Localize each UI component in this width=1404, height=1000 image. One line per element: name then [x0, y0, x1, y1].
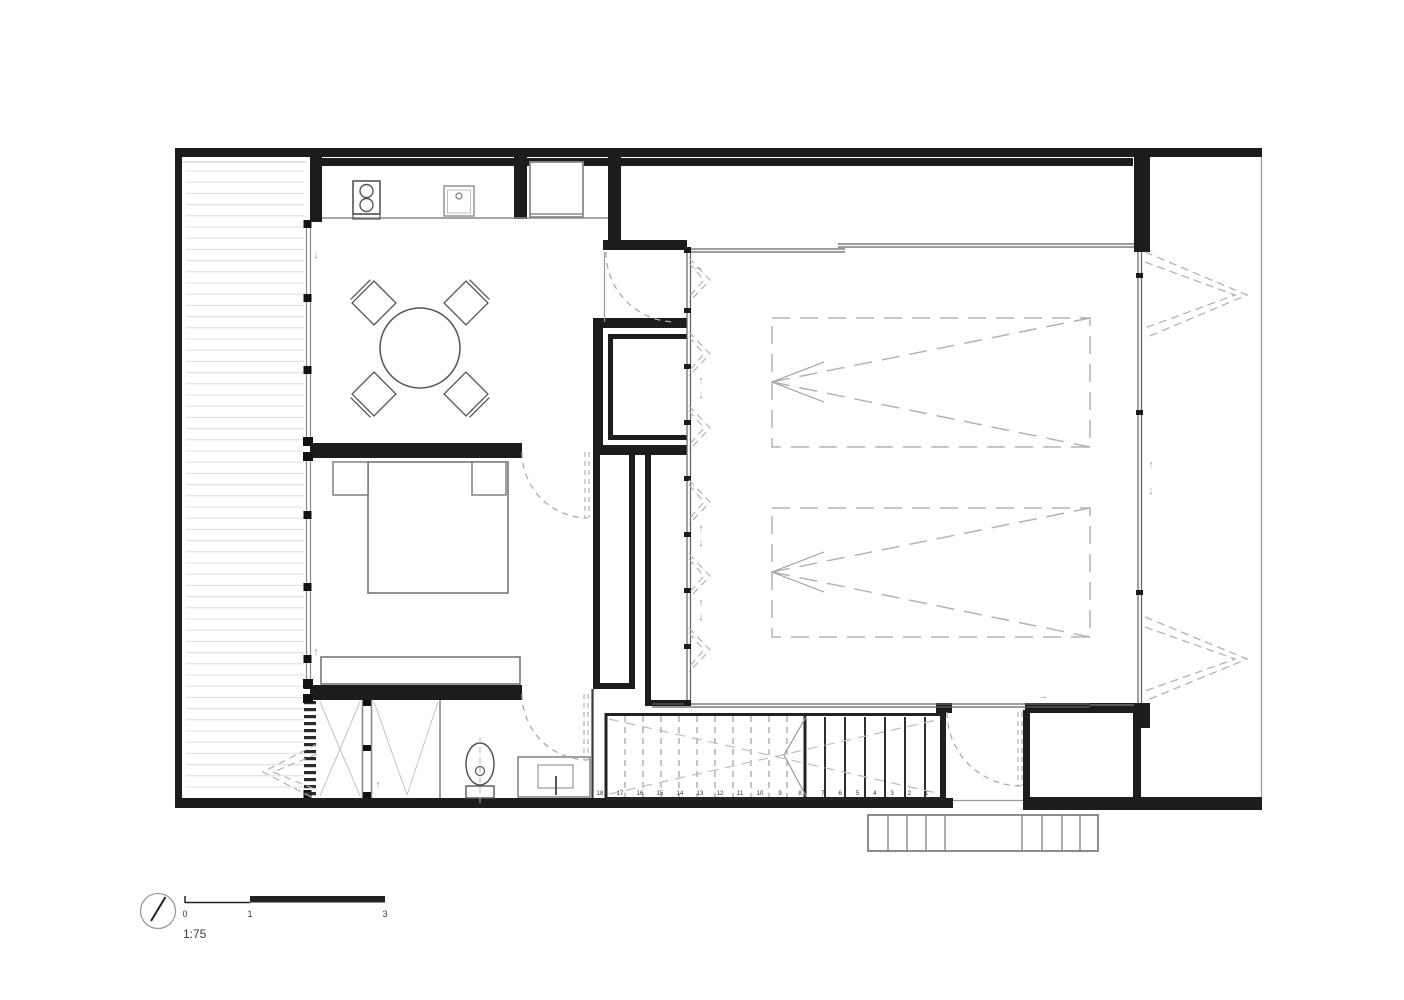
folding-door-chevron — [689, 337, 704, 371]
void-outline — [772, 508, 1090, 637]
void-diagonal — [772, 508, 1090, 572]
stair-tread-number: 16 — [637, 791, 644, 797]
nightstand — [472, 462, 506, 495]
dining-chair-icon — [444, 279, 490, 325]
wall-segment — [629, 455, 635, 683]
chair-seat — [352, 372, 396, 416]
glazing-tick — [1136, 273, 1143, 278]
dining-chair-icon — [350, 372, 396, 418]
void-apex-chevron — [772, 362, 824, 402]
folding-door-chevron — [689, 480, 710, 524]
louver-bar — [304, 778, 316, 781]
stair-tread-number: 5 — [856, 791, 860, 797]
glazing-tick — [684, 532, 691, 537]
north-arrow-icon — [141, 894, 176, 929]
stair-tread-number: 11 — [737, 791, 744, 797]
arrow-down-icon: ↓ — [1148, 485, 1154, 497]
stair-tread-number: 17 — [617, 791, 624, 797]
dining-area — [350, 279, 491, 419]
folding-door-chevron — [689, 554, 710, 598]
wall-segment — [514, 157, 527, 219]
wall-segment — [603, 240, 687, 250]
folding-door-chevron — [689, 559, 704, 593]
wall-segment — [608, 334, 613, 440]
round-dining-table-icon — [380, 308, 460, 388]
arrow-down-icon: ↓ — [698, 537, 704, 549]
arrow-up-icon: ↑ — [1148, 459, 1154, 471]
wall-segment — [608, 334, 687, 339]
glazing-tick — [1136, 590, 1143, 595]
arrow-up-icon: ↑ — [698, 523, 704, 535]
arrow-down-icon: ↓ — [313, 249, 319, 261]
arrow-up-icon: ↑ — [698, 597, 704, 609]
folding-door-chevron — [689, 485, 704, 519]
stair-tread-number: 2 — [908, 791, 912, 797]
exterior-steps-outline — [868, 815, 1098, 851]
folding-door-chevron — [689, 411, 704, 445]
arrow-down-icon: ↓ — [698, 611, 704, 623]
dresser — [321, 657, 520, 684]
sliding-glazing — [652, 244, 1143, 707]
stair-mid-wall — [804, 715, 807, 798]
void-diagonal — [772, 382, 1090, 447]
scale-tick-label: 3 — [382, 909, 387, 919]
dining-chair-icon — [350, 279, 396, 325]
louver-bar — [304, 715, 316, 718]
wall-segment — [593, 318, 687, 328]
wall-end-block — [303, 437, 313, 446]
glazing-tick — [1136, 410, 1143, 415]
stair-tread-number: 18 — [597, 791, 604, 797]
stair-tread-number: 10 — [757, 791, 764, 797]
louver-bar — [304, 722, 316, 725]
louver-bar — [304, 736, 316, 739]
wall-segment — [1134, 148, 1150, 252]
void-apex-chevron — [772, 552, 824, 592]
folding-door-chevron — [1145, 252, 1247, 338]
stair-tread-number: 6 — [839, 791, 843, 797]
stair-tread-number: 3 — [890, 791, 894, 797]
glazing-tick — [684, 588, 691, 593]
scale-bar: 013 — [182, 896, 387, 919]
door-swing-arc — [522, 694, 588, 760]
slider-roller — [304, 655, 312, 663]
void-diagonal — [772, 572, 1090, 637]
wall-end-block — [303, 679, 313, 688]
folding-door-chevron — [689, 628, 710, 672]
dining-chair-icon — [444, 372, 490, 418]
wall-segment — [1023, 710, 1030, 798]
kitchen — [322, 162, 608, 219]
arrow-up-icon: ↑ — [698, 375, 704, 387]
slider-roller — [304, 294, 312, 302]
hinge-block — [363, 792, 371, 798]
wall-end-block — [303, 452, 313, 461]
wall-segment — [310, 443, 522, 458]
floorplan-page: 123456789101112131415161718 ↑↓↑↓↑↓↓↑→→↑↓… — [0, 0, 1404, 1000]
louver-bar — [304, 708, 316, 711]
wall-segment — [310, 148, 322, 222]
wall-segment — [593, 318, 603, 455]
glazing-tick — [684, 308, 691, 313]
wall-segment — [593, 683, 635, 689]
chair-seat — [444, 372, 488, 416]
glazing-tick — [684, 644, 691, 649]
glazing-tick — [684, 247, 691, 253]
stair-tread-number: 15 — [657, 791, 664, 797]
stair-tread-number: 9 — [778, 791, 782, 797]
door-swing-arc — [947, 712, 1021, 786]
wall-segment — [645, 455, 651, 706]
door-swing-arc — [522, 452, 588, 518]
scale-tick-label: 0 — [182, 909, 187, 919]
north-needle — [151, 897, 166, 921]
glazing-tick — [684, 364, 691, 369]
folding-door-chevron — [1145, 617, 1247, 701]
hinge-block — [363, 700, 371, 706]
wall-segment — [310, 685, 522, 700]
folding-door-chevron — [1145, 627, 1235, 691]
wardrobe-cross — [407, 702, 438, 795]
chair-backrest — [351, 398, 371, 418]
nightstand — [333, 462, 368, 495]
wall-segment — [645, 700, 687, 706]
stair-tread-number: 8 — [798, 791, 802, 797]
slider-roller — [304, 583, 312, 591]
wall-segment — [175, 148, 182, 808]
wall-segment — [608, 435, 687, 440]
arrow-right-icon: → — [1038, 690, 1049, 702]
arrow-right-icon: → — [693, 261, 704, 273]
scale-tick-label: 1 — [247, 909, 252, 919]
arrow-down-icon: ↓ — [698, 389, 704, 401]
arrow-up-icon: ↑ — [375, 779, 381, 791]
wall-segment — [1133, 713, 1141, 798]
louver-bar — [304, 729, 316, 732]
deck-area — [182, 162, 317, 800]
glazing-tick — [684, 700, 691, 706]
chair-backrest — [351, 280, 371, 300]
staircase: 123456789101112131415161718 — [597, 715, 944, 799]
bedroom — [321, 462, 520, 684]
slider-roller — [304, 366, 312, 374]
exterior-steps — [868, 815, 1098, 851]
void-outline — [772, 318, 1090, 447]
stair-tread-number: 13 — [697, 791, 704, 797]
chair-seat — [444, 281, 488, 325]
wall-end-block — [303, 694, 313, 703]
chair-seat — [352, 281, 396, 325]
scale-ratio-label: 1:75 — [183, 927, 207, 941]
wall-segment — [322, 158, 1133, 166]
floor-plan-drawing: 123456789101112131415161718 ↑↓↑↓↑↓↓↑→→↑↓… — [0, 0, 1404, 1000]
wall-segment — [1023, 797, 1262, 810]
chair-backrest — [470, 280, 490, 300]
stair-tread-number: 14 — [677, 791, 684, 797]
wall-segment — [593, 455, 600, 689]
fridge — [530, 162, 583, 217]
folding-door-chevron — [1145, 262, 1235, 328]
slider-roller — [304, 511, 312, 519]
main-room-voids — [772, 318, 1090, 637]
stair-tread-number: 4 — [873, 791, 877, 797]
arrow-up-icon: ↑ — [313, 646, 319, 658]
stair-tread-number: 12 — [717, 791, 724, 797]
louver-bar — [304, 764, 316, 767]
hinge-block — [363, 745, 371, 751]
stair-tread-number: 1 — [925, 791, 929, 797]
folding-door-chevron — [689, 332, 710, 376]
glazing-tick — [684, 420, 691, 425]
bathroom — [320, 700, 590, 803]
chair-backrest — [470, 398, 490, 418]
folding-door-chevron — [689, 633, 704, 667]
wall-segment — [175, 148, 1262, 157]
door-swing-arc — [606, 252, 676, 322]
folding-door-chevron — [689, 406, 710, 450]
bathroom-vanity-icon — [518, 757, 590, 797]
void-diagonal — [772, 318, 1090, 382]
louver-bar — [304, 771, 316, 774]
scale-segment-thick — [250, 896, 385, 903]
wall-segment — [593, 445, 687, 455]
right-terrace — [1145, 157, 1262, 797]
